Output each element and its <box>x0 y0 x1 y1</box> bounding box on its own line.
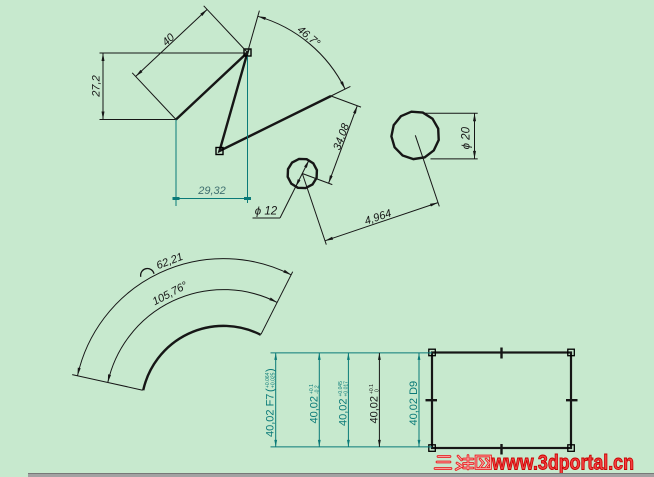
svg-text:+0.025: +0.025 <box>271 372 277 388</box>
svg-text:40,02 F7: 40,02 F7 <box>265 394 277 437</box>
svg-text:www.3dportal.cn: www.3dportal.cn <box>491 452 634 475</box>
svg-text:-0.2: -0.2 <box>314 385 320 394</box>
svg-text:29,32: 29,32 <box>197 185 226 197</box>
svg-text:40,02 D9: 40,02 D9 <box>408 381 420 426</box>
svg-text:40,02: 40,02 <box>337 398 349 426</box>
svg-text:): ) <box>265 368 277 372</box>
svg-text:+0.017: +0.017 <box>343 381 349 397</box>
svg-text:40,02: 40,02 <box>308 396 320 424</box>
svg-text:ϕ 20: ϕ 20 <box>460 126 472 149</box>
svg-text:0: 0 <box>374 389 380 392</box>
svg-text:27,2: 27,2 <box>91 75 103 97</box>
svg-text:40,02: 40,02 <box>368 396 380 424</box>
svg-text:ϕ 12: ϕ 12 <box>255 206 278 218</box>
